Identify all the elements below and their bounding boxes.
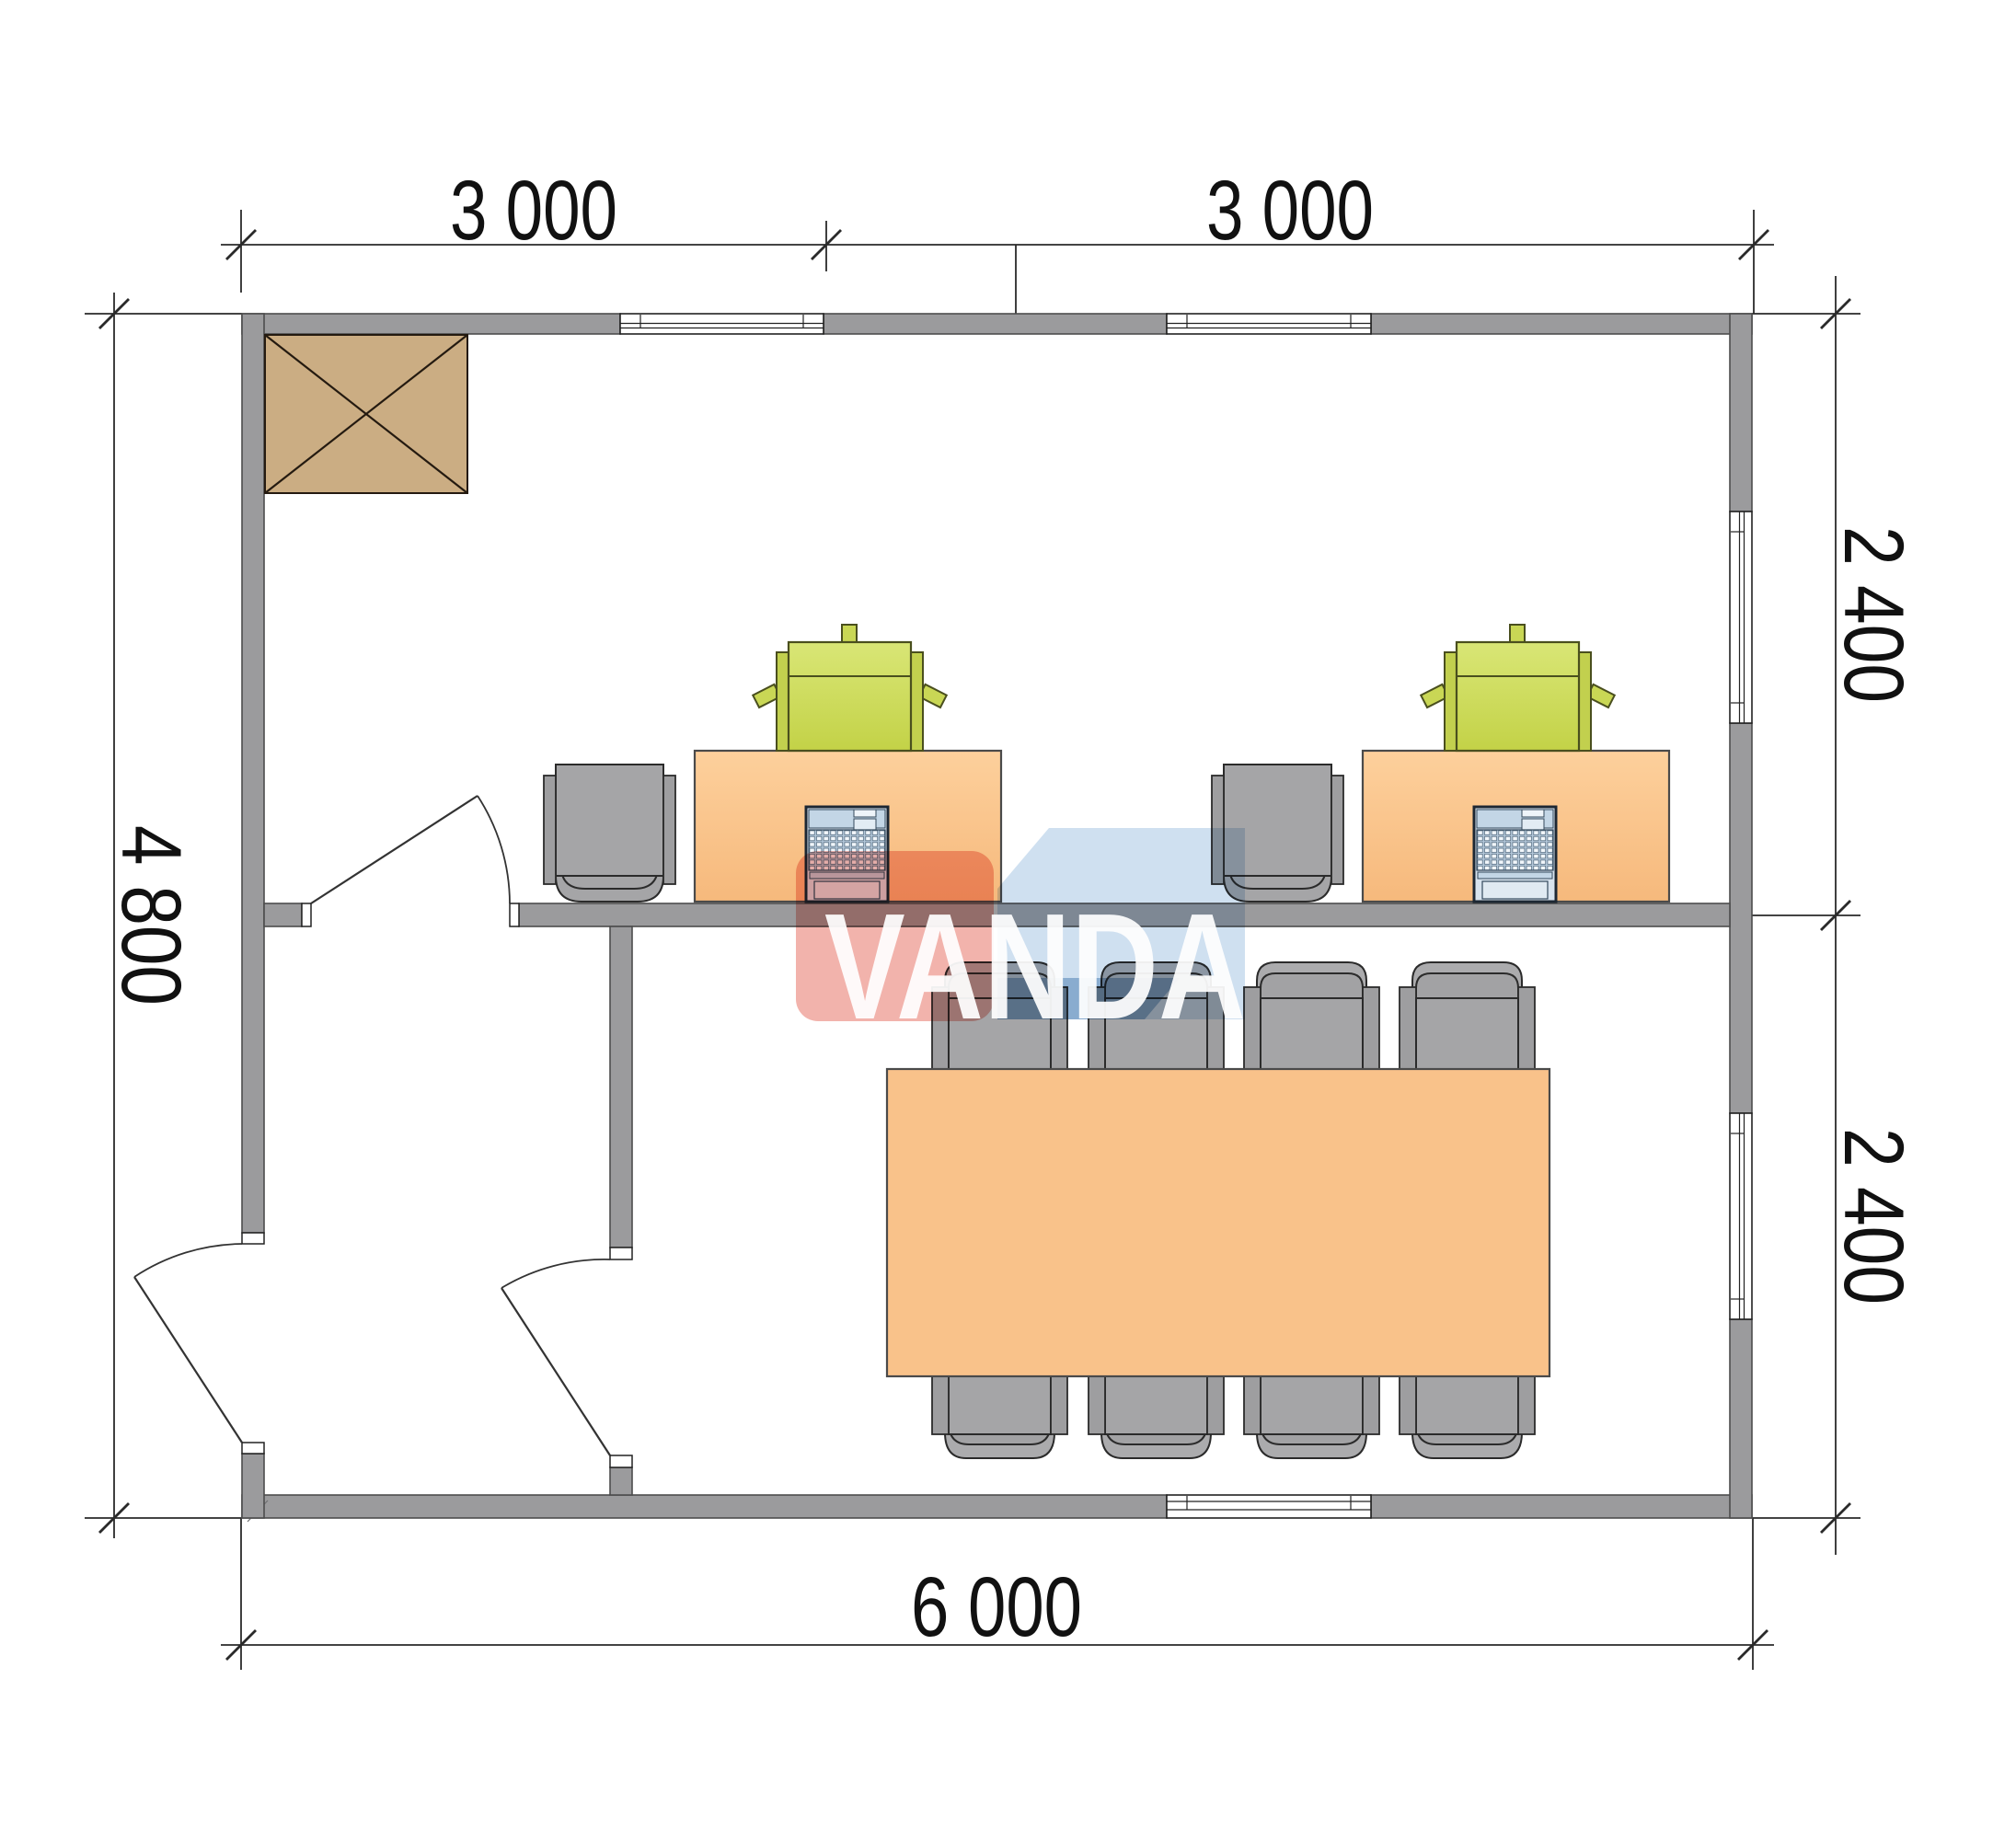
svg-text:4 800: 4 800 [104,825,198,1006]
svg-text:3 000: 3 000 [1206,164,1374,258]
svg-text:3 000: 3 000 [450,164,617,258]
svg-text:2 400: 2 400 [1826,526,1920,703]
svg-text:6 000: 6 000 [911,1560,1082,1654]
svg-text:2 400: 2 400 [1826,1128,1920,1305]
svg-text:VANDA: VANDA [824,882,1246,1051]
